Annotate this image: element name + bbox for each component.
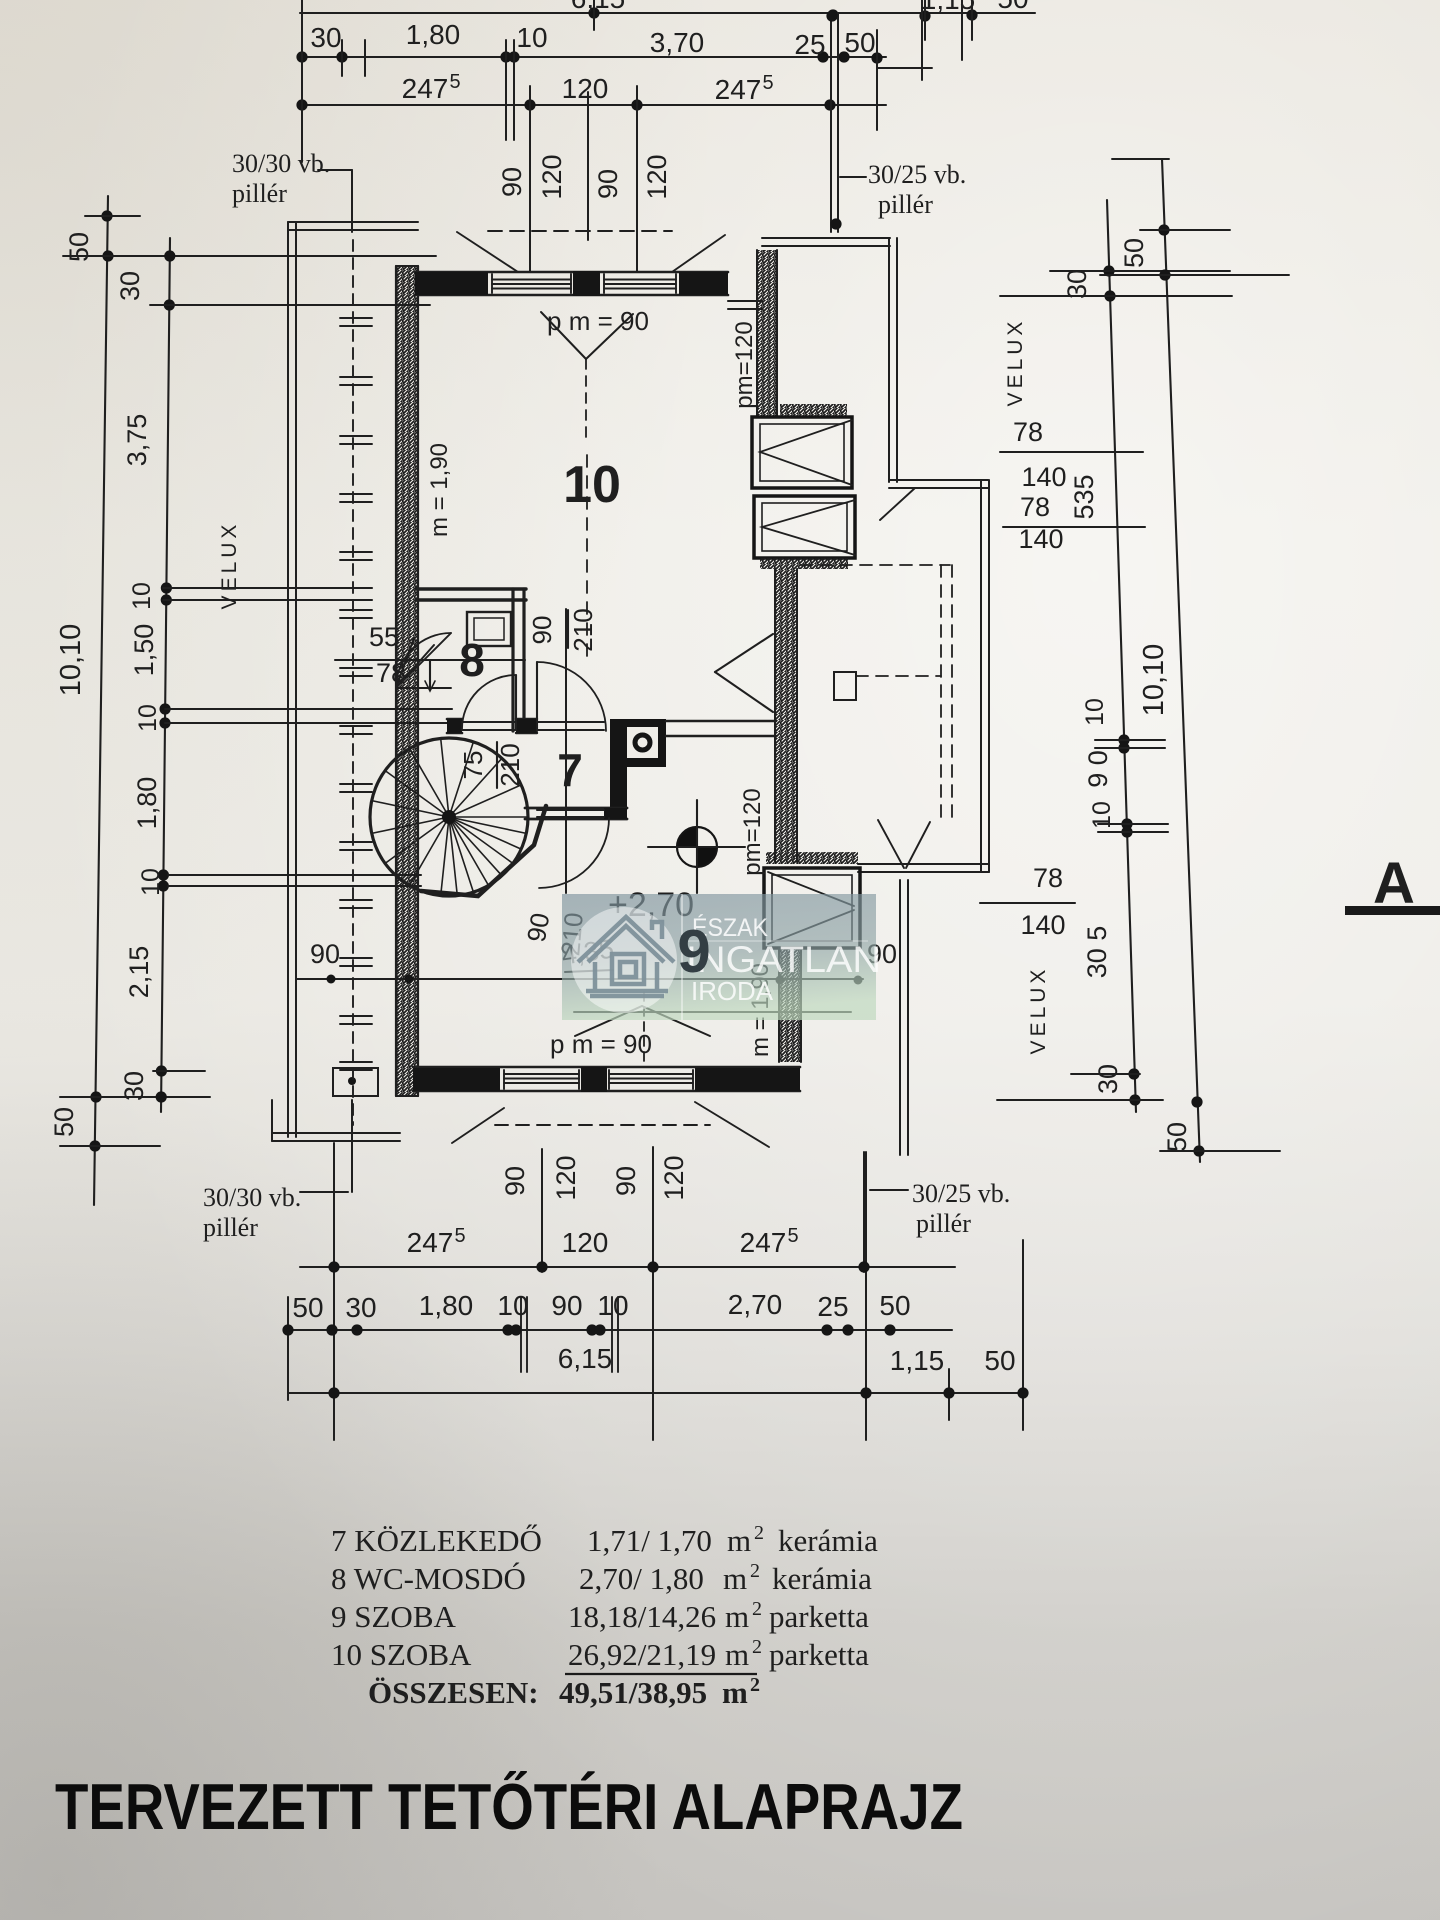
svg-text:25: 25 — [817, 1291, 848, 1322]
svg-text:m = 1,90: m = 1,90 — [426, 443, 453, 537]
svg-text:5: 5 — [449, 71, 460, 93]
svg-text:p m = 90: p m = 90 — [547, 306, 649, 336]
svg-text:30: 30 — [1093, 1064, 1123, 1094]
svg-text:120: 120 — [537, 154, 567, 199]
svg-text:10: 10 — [597, 1290, 628, 1321]
svg-text:90: 90 — [593, 169, 623, 199]
svg-text:2,70: 2,70 — [728, 1289, 783, 1320]
svg-text:m: m — [725, 1637, 749, 1672]
svg-text:VELUX: VELUX — [1027, 966, 1050, 1055]
svg-text:1,80: 1,80 — [132, 777, 162, 830]
svg-text:535: 535 — [1069, 474, 1099, 519]
svg-text:30/30 vb.: 30/30 vb. — [203, 1183, 301, 1212]
svg-text:247: 247 — [402, 73, 449, 104]
svg-text:pillér: pillér — [916, 1209, 971, 1238]
svg-text:30/25 vb.: 30/25 vb. — [912, 1179, 1010, 1208]
svg-text:m: m — [725, 1599, 749, 1634]
svg-text:50: 50 — [49, 1107, 79, 1137]
svg-text:7: 7 — [557, 744, 583, 796]
svg-text:pm=120: pm=120 — [731, 321, 758, 408]
svg-text:2,70/ 1,80: 2,70/ 1,80 — [579, 1561, 704, 1596]
svg-text:30: 30 — [119, 1071, 149, 1101]
svg-text:1,15: 1,15 — [921, 0, 976, 15]
svg-text:90: 90 — [497, 167, 527, 197]
svg-text:78: 78 — [1013, 417, 1043, 447]
svg-text:30: 30 — [345, 1292, 376, 1323]
svg-text:50: 50 — [292, 1292, 323, 1323]
svg-text:10,10: 10,10 — [1138, 644, 1170, 717]
svg-text:9 SZOBA: 9 SZOBA — [331, 1599, 456, 1634]
svg-text:30/30 vb.: 30/30 vb. — [232, 149, 330, 178]
svg-text:kerámia: kerámia — [772, 1561, 872, 1596]
svg-text:18,18/14,26: 18,18/14,26 — [568, 1599, 716, 1634]
svg-text:9 0: 9 0 — [1083, 750, 1113, 788]
svg-text:49,51/38,95: 49,51/38,95 — [559, 1675, 707, 1710]
svg-text:50: 50 — [984, 1345, 1015, 1376]
svg-text:kerámia: kerámia — [778, 1523, 878, 1558]
svg-text:247: 247 — [715, 74, 762, 105]
svg-text:50: 50 — [64, 232, 94, 262]
svg-text:5: 5 — [454, 1225, 465, 1247]
svg-text:1,50: 1,50 — [129, 624, 159, 677]
svg-text:pillér: pillér — [203, 1213, 258, 1242]
svg-text:pillér: pillér — [232, 179, 287, 208]
svg-text:90: 90 — [551, 1290, 582, 1321]
svg-text:2: 2 — [750, 1560, 760, 1582]
svg-text:50: 50 — [879, 1290, 910, 1321]
svg-text:pm=120: pm=120 — [739, 788, 766, 875]
svg-text:2: 2 — [752, 1598, 762, 1620]
svg-text:30: 30 — [115, 271, 145, 301]
svg-text:7 KÖZLEKEDŐ: 7 KÖZLEKEDŐ — [331, 1523, 542, 1558]
svg-text:10: 10 — [137, 868, 165, 896]
svg-text:p m = 90: p m = 90 — [550, 1029, 652, 1059]
svg-text:VELUX: VELUX — [1004, 318, 1027, 407]
svg-text:10: 10 — [497, 1290, 528, 1321]
svg-text:55: 55 — [369, 622, 399, 652]
svg-text:50: 50 — [844, 27, 875, 58]
svg-text:m: m — [723, 1561, 747, 1596]
svg-text:m: m — [727, 1523, 751, 1558]
svg-text:10: 10 — [563, 456, 621, 514]
svg-text:parketta: parketta — [769, 1637, 869, 1672]
svg-text:1,15: 1,15 — [890, 1345, 945, 1376]
svg-text:5: 5 — [762, 72, 773, 94]
svg-text:ÖSSZESEN:: ÖSSZESEN: — [368, 1675, 539, 1710]
svg-text:90: 90 — [527, 616, 557, 645]
svg-text:10,10: 10,10 — [55, 624, 87, 697]
svg-text:210: 210 — [568, 608, 598, 651]
svg-text:6,15: 6,15 — [558, 1343, 613, 1374]
svg-text:6,15: 6,15 — [571, 0, 626, 14]
svg-text:30 5: 30 5 — [1082, 926, 1112, 979]
svg-text:25: 25 — [794, 29, 825, 60]
svg-text:parketta: parketta — [769, 1599, 869, 1634]
svg-text:2,15: 2,15 — [124, 946, 154, 999]
svg-text:50: 50 — [997, 0, 1028, 14]
svg-text:TERVEZETT TETŐTÉRI ALAPRAJZ: TERVEZETT TETŐTÉRI ALAPRAJZ — [55, 1770, 963, 1843]
svg-text:3,70: 3,70 — [650, 27, 705, 58]
svg-text:120: 120 — [551, 1155, 581, 1200]
svg-text:10 SZOBA: 10 SZOBA — [331, 1637, 472, 1672]
svg-text:INGATLAN: INGATLAN — [686, 939, 881, 980]
svg-text:2: 2 — [752, 1636, 762, 1658]
svg-text:pillér: pillér — [878, 190, 933, 219]
svg-text:78: 78 — [1033, 863, 1063, 893]
svg-text:120: 120 — [642, 154, 672, 199]
svg-text:247: 247 — [407, 1227, 454, 1258]
svg-text:50: 50 — [1119, 238, 1149, 268]
svg-text:140: 140 — [1018, 524, 1063, 554]
svg-text:3,75: 3,75 — [122, 414, 152, 467]
svg-text:1,80: 1,80 — [419, 1290, 474, 1321]
svg-text:1,80: 1,80 — [406, 19, 461, 50]
svg-text:50: 50 — [1162, 1122, 1192, 1152]
svg-text:8: 8 — [459, 634, 485, 686]
svg-text:9: 9 — [677, 918, 710, 985]
svg-text:30: 30 — [310, 22, 341, 53]
svg-text:90: 90 — [521, 911, 556, 945]
svg-text:2: 2 — [750, 1674, 760, 1696]
svg-text:140: 140 — [1021, 462, 1066, 492]
svg-text:1,71/ 1,70: 1,71/ 1,70 — [587, 1523, 712, 1558]
svg-text:120: 120 — [562, 1227, 609, 1258]
svg-text:90: 90 — [310, 939, 340, 969]
svg-text:2: 2 — [754, 1522, 764, 1544]
svg-text:78: 78 — [1020, 492, 1050, 522]
svg-text:10: 10 — [1081, 698, 1109, 726]
svg-text:26,92/21,19: 26,92/21,19 — [568, 1637, 716, 1672]
svg-text:10: 10 — [134, 704, 162, 732]
svg-text:10: 10 — [128, 582, 156, 610]
svg-text:140: 140 — [1020, 910, 1065, 940]
svg-text:VELUX: VELUX — [218, 521, 241, 610]
svg-text:247: 247 — [740, 1227, 787, 1258]
svg-text:30: 30 — [1062, 269, 1092, 299]
svg-text:120: 120 — [562, 73, 609, 104]
svg-text:10: 10 — [516, 22, 547, 53]
svg-text:90: 90 — [500, 1166, 530, 1196]
svg-text:10: 10 — [1088, 801, 1116, 829]
svg-text:8 WC-MOSDÓ: 8 WC-MOSDÓ — [331, 1561, 526, 1596]
svg-text:m: m — [722, 1675, 748, 1710]
svg-text:120: 120 — [659, 1155, 689, 1200]
svg-text:5: 5 — [787, 1225, 798, 1247]
svg-text:30/25 vb.: 30/25 vb. — [868, 160, 966, 189]
svg-text:90: 90 — [611, 1166, 641, 1196]
